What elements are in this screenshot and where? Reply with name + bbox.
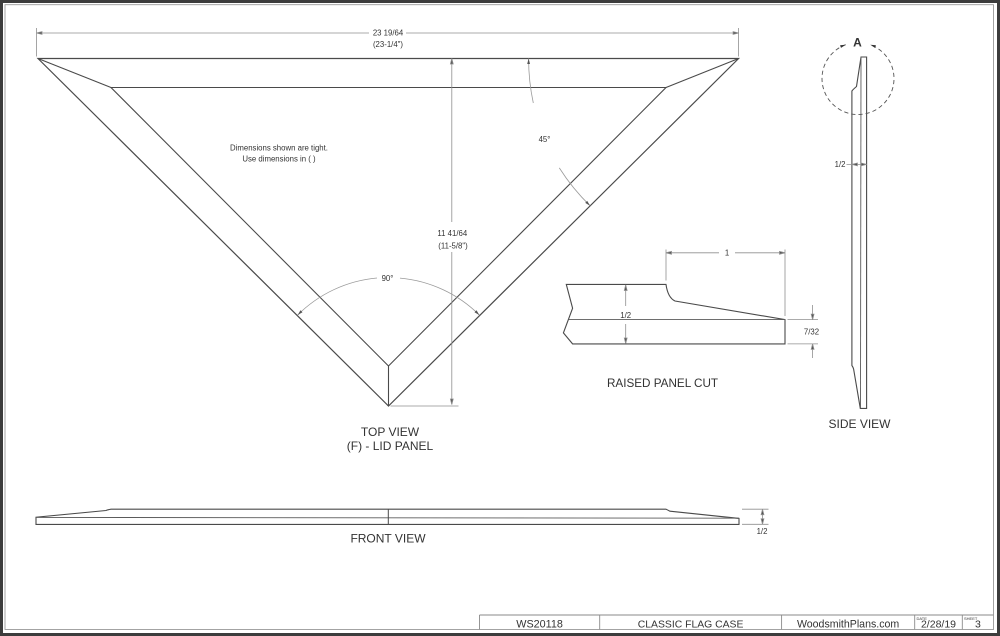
svg-text:90°: 90° [382,274,394,283]
svg-text:1/2: 1/2 [757,527,768,536]
svg-text:1: 1 [725,249,729,258]
svg-text:45°: 45° [539,135,551,144]
svg-text:A: A [853,36,862,50]
svg-text:23 19/64: 23 19/64 [373,29,404,38]
svg-text:3: 3 [975,618,981,630]
svg-text:SIDE VIEW: SIDE VIEW [828,417,891,431]
svg-text:FRONT VIEW: FRONT VIEW [350,532,426,546]
svg-text:7/32: 7/32 [804,328,819,337]
svg-text:(11-5/8"): (11-5/8") [438,241,468,250]
svg-text:2/28/19: 2/28/19 [921,618,956,630]
svg-text:Use dimensions in ( ): Use dimensions in ( ) [242,154,316,163]
svg-text:RAISED PANEL CUT: RAISED PANEL CUT [607,377,718,390]
svg-text:1/2: 1/2 [835,160,846,169]
svg-text:Dimensions shown are tight.: Dimensions shown are tight. [230,144,328,153]
svg-text:TOP VIEW: TOP VIEW [361,425,420,439]
svg-text:(F) - LID PANEL: (F) - LID PANEL [347,439,434,453]
svg-text:WoodsmithPlans.com: WoodsmithPlans.com [797,618,899,630]
svg-text:11 41/64: 11 41/64 [437,229,467,238]
svg-text:WS20118: WS20118 [516,618,563,630]
svg-text:1/2: 1/2 [620,311,631,320]
svg-text:CLASSIC FLAG CASE: CLASSIC FLAG CASE [638,619,744,630]
svg-text:(23-1/4"): (23-1/4") [373,40,403,49]
